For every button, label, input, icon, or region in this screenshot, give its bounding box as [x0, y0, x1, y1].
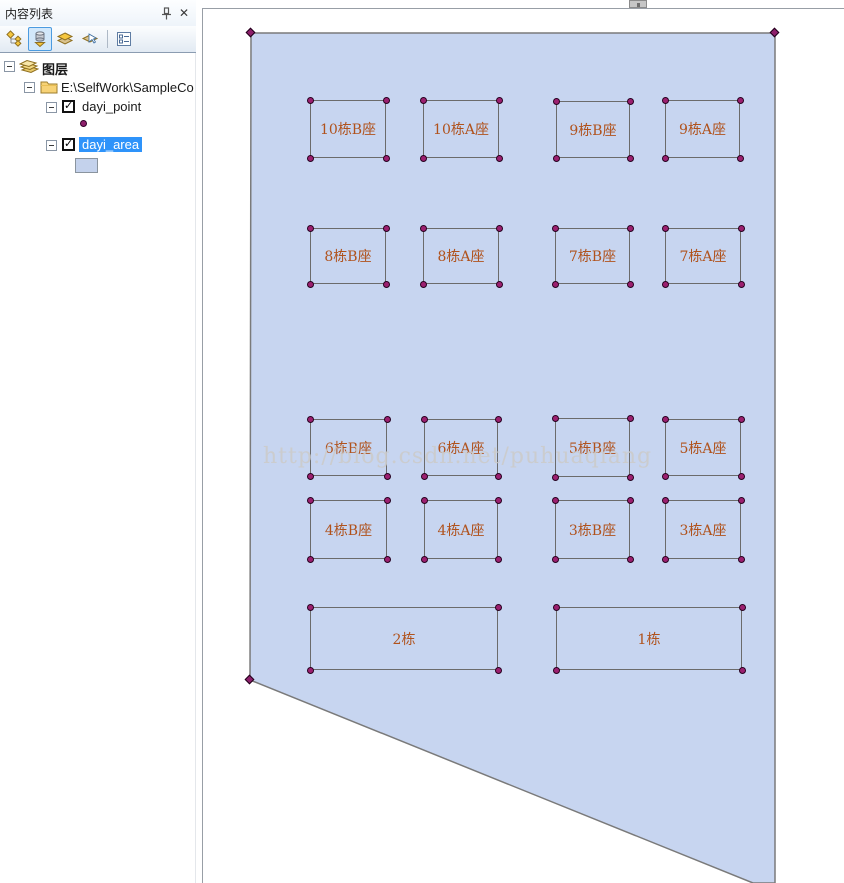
options-button[interactable]	[112, 27, 136, 51]
building-vertex-point[interactable]	[552, 556, 559, 563]
building-vertex-point[interactable]	[421, 416, 428, 423]
building-vertex-point[interactable]	[662, 556, 669, 563]
building-vertex-point[interactable]	[384, 556, 391, 563]
building-vertex-point[interactable]	[552, 415, 559, 422]
building-label: 5栋B座	[556, 419, 629, 476]
drawing-order-icon	[6, 30, 24, 48]
building-label: 10栋B座	[311, 101, 385, 157]
point-layer-checkbox[interactable]: ✓	[62, 100, 75, 113]
tree-node-point-layer[interactable]: dayi_point	[82, 99, 141, 114]
building-vertex-point[interactable]	[627, 98, 634, 105]
tree-node-area-layer[interactable]: dayi_area	[79, 137, 142, 152]
building-footprint[interactable]: 4栋B座	[310, 500, 387, 559]
source-database-icon	[31, 30, 49, 48]
building-vertex-point[interactable]	[307, 97, 314, 104]
building-vertex-point[interactable]	[420, 225, 427, 232]
options-list-icon	[115, 30, 133, 48]
building-footprint[interactable]: 4栋A座	[424, 500, 498, 559]
building-vertex-point[interactable]	[383, 97, 390, 104]
building-vertex-point[interactable]	[662, 281, 669, 288]
building-label: 10栋A座	[424, 101, 498, 157]
building-vertex-point[interactable]	[383, 155, 390, 162]
building-vertex-point[interactable]	[738, 225, 745, 232]
building-vertex-point[interactable]	[383, 281, 390, 288]
building-vertex-point[interactable]	[662, 416, 669, 423]
building-vertex-point[interactable]	[307, 473, 314, 480]
building-footprint[interactable]: 2栋	[310, 607, 498, 670]
folder-expander[interactable]	[24, 82, 35, 93]
building-vertex-point[interactable]	[420, 97, 427, 104]
building-vertex-point[interactable]	[737, 155, 744, 162]
building-footprint[interactable]: 9栋B座	[556, 101, 630, 158]
splitter-handle[interactable]	[629, 0, 647, 8]
building-vertex-point[interactable]	[420, 281, 427, 288]
building-vertex-point[interactable]	[627, 281, 634, 288]
building-label: 1栋	[557, 608, 741, 669]
area-symbol-swatch[interactable]	[75, 158, 98, 173]
building-footprint[interactable]: 5栋B座	[555, 418, 630, 477]
building-footprint[interactable]: 8栋B座	[310, 228, 386, 284]
building-vertex-point[interactable]	[552, 497, 559, 504]
building-vertex-point[interactable]	[421, 556, 428, 563]
point-layer-expander[interactable]	[46, 102, 57, 113]
building-vertex-point[interactable]	[627, 415, 634, 422]
building-label: 5栋A座	[666, 420, 740, 475]
visibility-layers-icon	[56, 30, 74, 48]
building-vertex-point[interactable]	[496, 97, 503, 104]
tree-node-folder[interactable]: E:\SelfWork\SampleCo	[61, 80, 194, 95]
building-footprint[interactable]: 7栋B座	[555, 228, 630, 284]
building-vertex-point[interactable]	[737, 97, 744, 104]
building-label: 6栋B座	[311, 420, 386, 475]
building-footprint[interactable]: 5栋A座	[665, 419, 741, 476]
building-label: 2栋	[311, 608, 497, 669]
building-vertex-point[interactable]	[627, 155, 634, 162]
building-vertex-point[interactable]	[495, 497, 502, 504]
panel-title: 内容列表	[0, 5, 53, 22]
building-label: 3栋A座	[666, 501, 740, 558]
building-label: 7栋A座	[666, 229, 740, 283]
building-vertex-point[interactable]	[662, 473, 669, 480]
map-canvas[interactable]	[202, 8, 844, 883]
toolbar-separator	[107, 30, 108, 48]
building-vertex-point[interactable]	[662, 97, 669, 104]
building-label: 8栋B座	[311, 229, 385, 283]
building-vertex-point[interactable]	[552, 281, 559, 288]
building-vertex-point[interactable]	[495, 416, 502, 423]
building-vertex-point[interactable]	[662, 225, 669, 232]
building-vertex-point[interactable]	[552, 474, 559, 481]
building-vertex-point[interactable]	[495, 473, 502, 480]
building-vertex-point[interactable]	[738, 416, 745, 423]
building-footprint[interactable]: 9栋A座	[665, 100, 740, 158]
building-vertex-point[interactable]	[421, 497, 428, 504]
building-label: 8栋A座	[424, 229, 498, 283]
layers-expander[interactable]	[4, 61, 15, 72]
building-vertex-point[interactable]	[307, 281, 314, 288]
tree-node-layers[interactable]: 图层	[42, 59, 68, 78]
area-layer-expander[interactable]	[46, 140, 57, 151]
building-vertex-point[interactable]	[738, 556, 745, 563]
building-label: 9栋A座	[666, 101, 739, 157]
building-vertex-point[interactable]	[307, 225, 314, 232]
building-vertex-point[interactable]	[307, 155, 314, 162]
building-footprint[interactable]: 10栋A座	[423, 100, 499, 158]
building-vertex-point[interactable]	[738, 473, 745, 480]
toc-toolbar	[0, 26, 196, 53]
layers-group-icon	[19, 57, 39, 75]
building-vertex-point[interactable]	[383, 225, 390, 232]
building-footprint[interactable]: 8栋A座	[423, 228, 499, 284]
building-vertex-point[interactable]	[496, 225, 503, 232]
building-vertex-point[interactable]	[627, 497, 634, 504]
building-vertex-point[interactable]	[553, 604, 560, 611]
building-footprint[interactable]: 6栋B座	[310, 419, 387, 476]
pin-icon	[161, 7, 172, 20]
close-panel-button[interactable]: ✕	[176, 5, 192, 21]
auto-hide-pin-button[interactable]	[158, 5, 174, 21]
building-vertex-point[interactable]	[738, 281, 745, 288]
table-of-contents-panel: 内容列表 ✕	[0, 0, 196, 883]
building-footprint[interactable]: 6栋A座	[424, 419, 498, 476]
application-window: 10栋B座10栋A座9栋B座9栋A座8栋B座8栋A座7栋B座7栋A座6栋B座6栋…	[0, 0, 844, 883]
building-vertex-point[interactable]	[496, 281, 503, 288]
building-vertex-point[interactable]	[553, 155, 560, 162]
building-vertex-point[interactable]	[384, 497, 391, 504]
building-vertex-point[interactable]	[307, 667, 314, 674]
building-vertex-point[interactable]	[496, 155, 503, 162]
building-footprint[interactable]: 1栋	[556, 607, 742, 670]
selection-layer-icon	[81, 30, 99, 48]
building-vertex-point[interactable]	[552, 225, 559, 232]
building-vertex-point[interactable]	[739, 667, 746, 674]
building-vertex-point[interactable]	[421, 473, 428, 480]
point-symbol-swatch[interactable]	[80, 120, 87, 127]
building-vertex-point[interactable]	[627, 474, 634, 481]
building-vertex-point[interactable]	[627, 225, 634, 232]
building-label: 7栋B座	[556, 229, 629, 283]
building-footprint[interactable]: 10栋B座	[310, 100, 386, 158]
building-vertex-point[interactable]	[307, 604, 314, 611]
building-vertex-point[interactable]	[495, 556, 502, 563]
building-vertex-point[interactable]	[553, 98, 560, 105]
list-by-selection-button[interactable]	[78, 27, 102, 51]
building-vertex-point[interactable]	[627, 556, 634, 563]
list-by-visibility-button[interactable]	[53, 27, 77, 51]
building-vertex-point[interactable]	[495, 667, 502, 674]
building-vertex-point[interactable]	[739, 604, 746, 611]
building-label: 4栋A座	[425, 501, 497, 558]
building-footprint[interactable]: 3栋A座	[665, 500, 741, 559]
building-label: 4栋B座	[311, 501, 386, 558]
building-vertex-point[interactable]	[384, 416, 391, 423]
building-vertex-point[interactable]	[495, 604, 502, 611]
building-vertex-point[interactable]	[384, 473, 391, 480]
list-by-drawing-order-button[interactable]	[3, 27, 27, 51]
close-icon: ✕	[179, 6, 189, 20]
folder-icon	[40, 79, 58, 94]
building-vertex-point[interactable]	[307, 556, 314, 563]
panel-titlebar: 内容列表 ✕	[0, 0, 196, 26]
building-footprint[interactable]: 3栋B座	[555, 500, 630, 559]
building-vertex-point[interactable]	[738, 497, 745, 504]
building-label: 3栋B座	[556, 501, 629, 558]
area-layer-checkbox[interactable]: ✓	[62, 138, 75, 151]
building-vertex-point[interactable]	[662, 155, 669, 162]
building-footprint[interactable]: 7栋A座	[665, 228, 741, 284]
building-vertex-point[interactable]	[553, 667, 560, 674]
building-vertex-point[interactable]	[420, 155, 427, 162]
building-vertex-point[interactable]	[662, 497, 669, 504]
building-vertex-point[interactable]	[307, 416, 314, 423]
building-label: 6栋A座	[425, 420, 497, 475]
list-by-source-button[interactable]	[28, 27, 52, 51]
building-label: 9栋B座	[557, 102, 629, 157]
building-vertex-point[interactable]	[307, 497, 314, 504]
